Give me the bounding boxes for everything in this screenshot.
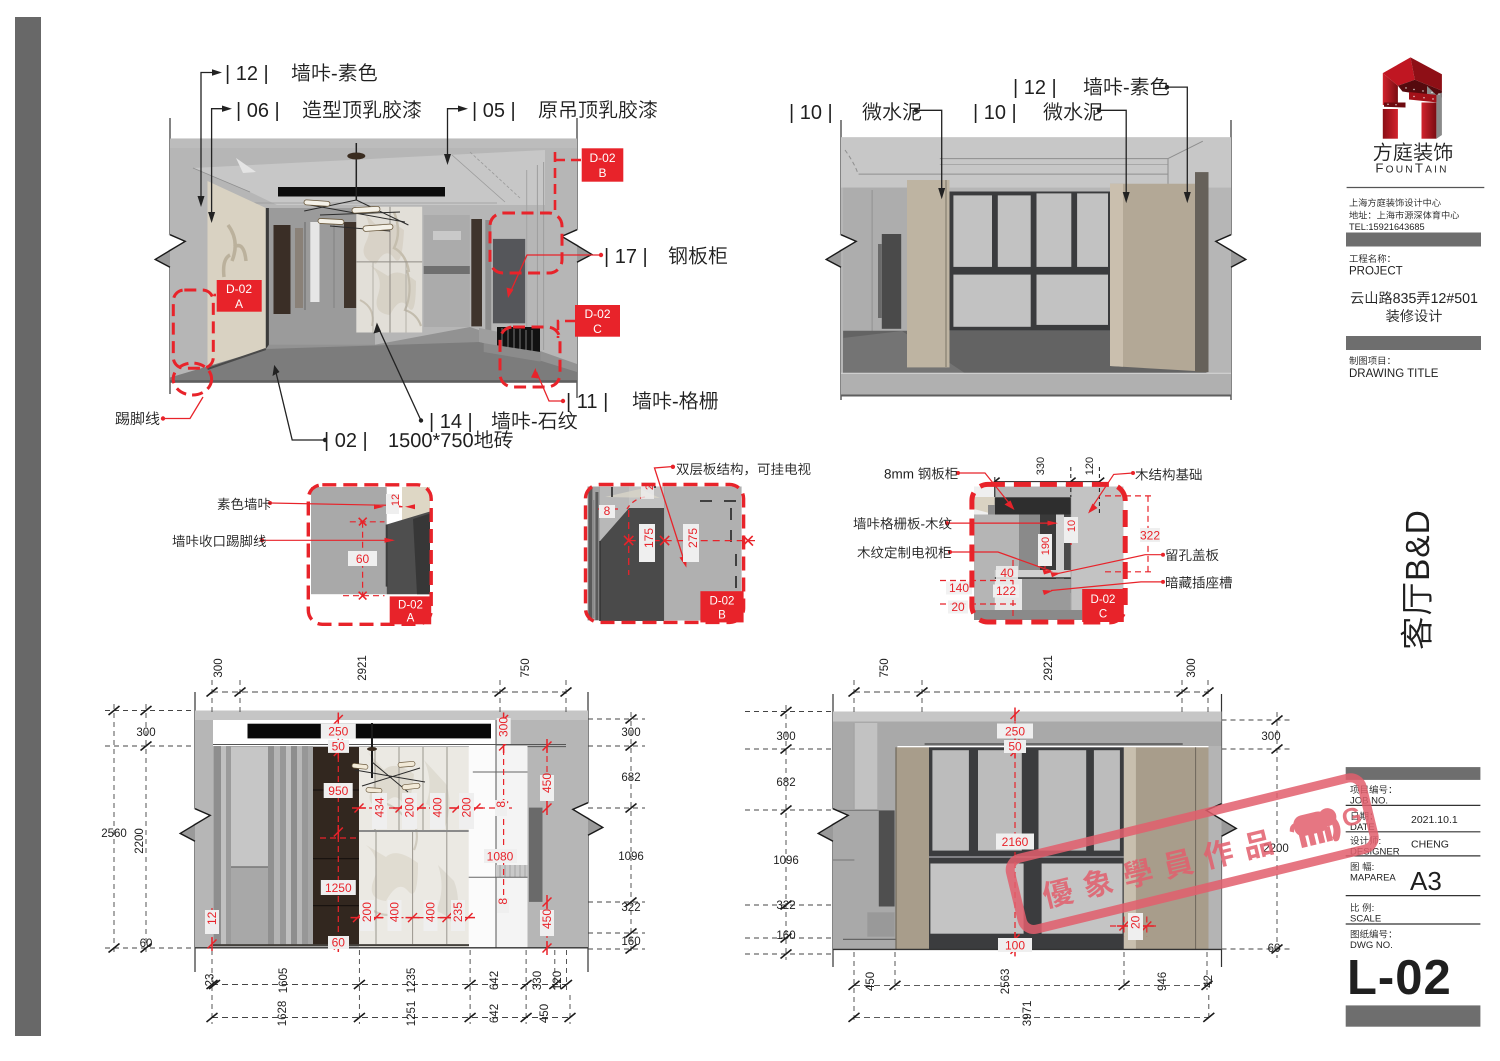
svg-text:10: 10 [1066, 520, 1078, 532]
svg-text:300: 300 [1186, 658, 1198, 677]
svg-text:2160: 2160 [1002, 835, 1029, 849]
svg-text:160: 160 [776, 930, 795, 942]
svg-text:3971: 3971 [1022, 1001, 1034, 1027]
svg-text:50: 50 [332, 740, 346, 754]
svg-text:2560: 2560 [101, 828, 127, 840]
svg-text:| 12 |: | 12 | [1013, 77, 1057, 99]
svg-text:60: 60 [140, 938, 153, 950]
svg-text:400: 400 [388, 902, 402, 922]
svg-text:400: 400 [424, 902, 438, 922]
svg-text:400: 400 [431, 797, 445, 817]
svg-text:330: 330 [532, 971, 544, 990]
svg-text:450: 450 [539, 1004, 551, 1023]
svg-text:D-02: D-02 [398, 600, 423, 612]
svg-text:DWG NO.: DWG NO. [1350, 940, 1393, 951]
svg-text:| 17 |: | 17 | [604, 246, 648, 268]
svg-text:750: 750 [879, 658, 891, 677]
svg-text:L-02: L-02 [1347, 951, 1452, 1005]
svg-text:| 11 |: | 11 | [566, 391, 608, 413]
svg-text:| 10 |: | 10 | [973, 102, 1017, 124]
svg-text:1605: 1605 [278, 968, 290, 994]
svg-text:322: 322 [776, 900, 795, 912]
svg-text:| 12 |: | 12 | [225, 63, 269, 85]
svg-text:250: 250 [328, 725, 348, 739]
svg-text:50: 50 [1008, 740, 1022, 754]
svg-text:A: A [235, 297, 243, 311]
svg-text:TEL:15921643685: TEL:15921643685 [1349, 222, 1425, 232]
svg-text:23: 23 [205, 974, 217, 987]
svg-text:300: 300 [776, 731, 795, 743]
svg-text:300: 300 [213, 658, 225, 677]
svg-text:C: C [593, 322, 602, 336]
svg-text:1250: 1250 [325, 881, 352, 895]
svg-text:140: 140 [949, 581, 969, 595]
svg-text:120: 120 [1084, 457, 1096, 475]
svg-text:| 02 |: | 02 | [324, 430, 368, 452]
svg-text:190: 190 [1040, 537, 1052, 555]
svg-text:| 05 |: | 05 | [472, 100, 516, 122]
svg-text:682: 682 [776, 777, 795, 789]
svg-text:750: 750 [520, 658, 532, 677]
svg-text:2921: 2921 [357, 655, 369, 681]
svg-text:300: 300 [497, 717, 511, 737]
svg-text:1096: 1096 [618, 851, 644, 863]
svg-text:A3: A3 [1410, 866, 1442, 896]
svg-text:| 06 |: | 06 | [236, 100, 280, 122]
svg-text:322: 322 [1140, 529, 1160, 543]
svg-text:DRAWING TITLE: DRAWING TITLE [1349, 368, 1439, 380]
svg-text:D-02: D-02 [589, 151, 615, 165]
svg-text:B: B [718, 610, 726, 622]
svg-text:60: 60 [356, 552, 370, 566]
svg-text:C: C [1099, 609, 1107, 621]
svg-text:42: 42 [1203, 975, 1215, 988]
svg-text:8: 8 [494, 801, 508, 808]
svg-text:235: 235 [451, 902, 465, 922]
svg-text:1080: 1080 [487, 849, 514, 863]
svg-text:275: 275 [686, 528, 700, 548]
svg-text:682: 682 [621, 772, 640, 784]
svg-text:D-02: D-02 [1091, 594, 1116, 606]
svg-text:1096: 1096 [773, 855, 799, 867]
svg-text:450: 450 [865, 972, 877, 991]
svg-text:60: 60 [332, 936, 346, 950]
svg-text:434: 434 [373, 797, 387, 817]
svg-text:322: 322 [621, 902, 640, 914]
svg-text:12: 12 [390, 494, 402, 506]
svg-text:8: 8 [604, 504, 611, 518]
svg-text:A: A [407, 613, 415, 625]
svg-text:200: 200 [360, 902, 374, 922]
svg-text:450: 450 [540, 773, 554, 793]
svg-text:946: 946 [1157, 972, 1169, 991]
svg-text:8: 8 [496, 898, 510, 905]
svg-text:300: 300 [621, 727, 640, 739]
svg-text:950: 950 [328, 784, 348, 798]
svg-text:330: 330 [1035, 457, 1047, 475]
svg-text:60: 60 [1268, 943, 1281, 955]
svg-text:2021.10.1: 2021.10.1 [1411, 814, 1458, 826]
svg-text:300: 300 [136, 727, 155, 739]
svg-text:175: 175 [642, 528, 656, 548]
svg-text:642: 642 [489, 1004, 501, 1023]
svg-text:20: 20 [951, 600, 965, 614]
svg-text:D-02: D-02 [584, 307, 610, 321]
svg-text:250: 250 [1005, 725, 1025, 739]
svg-text:1251: 1251 [406, 1001, 418, 1027]
svg-text:12: 12 [205, 911, 219, 925]
svg-text:2563: 2563 [1000, 969, 1012, 995]
svg-text:MAPAREA: MAPAREA [1350, 873, 1396, 884]
svg-text:122: 122 [996, 584, 1016, 598]
svg-text:PROJECT: PROJECT [1349, 266, 1403, 278]
svg-text:D-02: D-02 [710, 596, 735, 608]
svg-text:1628: 1628 [277, 1001, 289, 1027]
svg-text:2921: 2921 [1043, 655, 1055, 681]
svg-text:CHENG: CHENG [1411, 839, 1449, 851]
svg-text:160: 160 [621, 936, 640, 948]
svg-text:40: 40 [1000, 566, 1014, 580]
svg-text:1235: 1235 [406, 968, 418, 994]
svg-text:200: 200 [460, 797, 474, 817]
svg-text:D-02: D-02 [226, 282, 252, 296]
svg-text:SCALE: SCALE [1350, 914, 1381, 925]
svg-text:20: 20 [1128, 915, 1142, 929]
svg-text:300: 300 [1261, 731, 1280, 743]
svg-text:100: 100 [1005, 938, 1025, 952]
svg-text:2200: 2200 [134, 828, 146, 854]
svg-text:450: 450 [540, 909, 554, 929]
svg-text:FOUNTAIN: FOUNTAIN [1375, 161, 1448, 176]
svg-text:200: 200 [403, 797, 417, 817]
svg-text:B: B [598, 166, 606, 180]
svg-text:| 10 |: | 10 | [789, 102, 833, 124]
svg-text:642: 642 [489, 971, 501, 990]
svg-text:120: 120 [552, 971, 564, 990]
svg-text:| 14 |: | 14 | [429, 411, 473, 433]
